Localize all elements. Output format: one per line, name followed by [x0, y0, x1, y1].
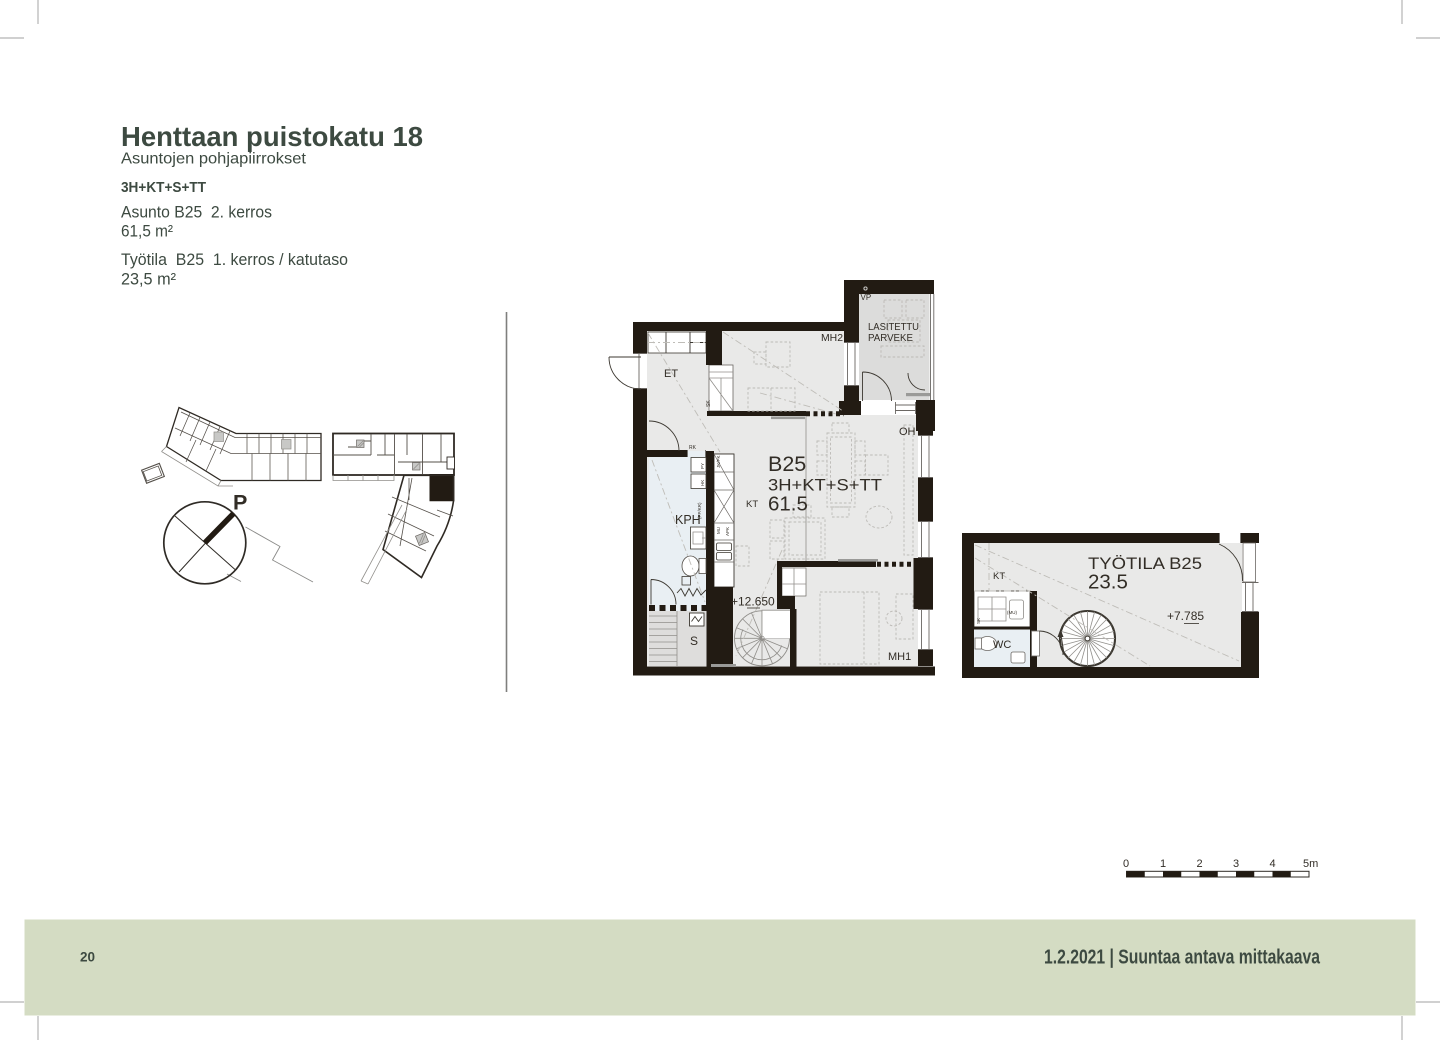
svg-text:S: S [690, 634, 698, 648]
svg-text:MH1: MH1 [888, 651, 911, 663]
svg-text:PARVEKE: PARVEKE [868, 333, 913, 344]
svg-text:4: 4 [1270, 858, 1276, 870]
svg-text:1: 1 [1160, 858, 1166, 870]
svg-text:PY: PY [700, 463, 705, 469]
svg-text:(MU): (MU) [1007, 610, 1017, 615]
svg-text:B25: B25 [768, 452, 806, 476]
svg-text:LASITETTU: LASITETTU [868, 322, 919, 333]
svg-text:(PP/KR): (PP/KR) [697, 502, 702, 519]
svg-text:3H+KT+S+TT: 3H+KT+S+TT [121, 179, 206, 196]
svg-text:61.5: 61.5 [768, 493, 808, 516]
svg-text:Asuntojen pohjapiirrokset: Asuntojen pohjapiirrokset [121, 151, 307, 168]
svg-text:Työtila B25 1. kerros / katu: Työtila B25 1. kerros / katutaso [121, 251, 348, 269]
svg-text:MU: MU [716, 527, 721, 534]
svg-text:P: P [233, 491, 247, 515]
svg-text:KT: KT [993, 571, 1005, 582]
svg-text:3: 3 [1233, 858, 1239, 870]
svg-text:+12.650: +12.650 [731, 595, 775, 609]
svg-text:SK: SK [976, 618, 981, 624]
svg-text:VP: VP [861, 293, 872, 302]
svg-text:WC: WC [993, 639, 1011, 651]
svg-text:2: 2 [1197, 858, 1203, 870]
svg-text:23.5: 23.5 [1088, 571, 1128, 594]
svg-text:JK/PK: JK/PK [716, 455, 721, 468]
svg-text:61,5 m²: 61,5 m² [121, 223, 173, 241]
svg-text:HK: HK [700, 480, 705, 486]
svg-text:Henttaan puistokatu 18: Henttaan puistokatu 18 [121, 121, 423, 152]
svg-text:ET: ET [664, 368, 678, 380]
svg-text:MH2: MH2 [821, 332, 843, 344]
svg-text:20: 20 [80, 950, 95, 965]
svg-text:23,5 m²: 23,5 m² [121, 271, 176, 289]
svg-text:1.2.2021 | Suuntaa antava mitt: 1.2.2021 | Suuntaa antava mittakaava [1044, 947, 1321, 969]
svg-text:RK: RK [689, 445, 697, 451]
svg-text:OH: OH [899, 426, 916, 438]
svg-text:KT: KT [746, 499, 758, 510]
svg-text:SK: SK [706, 400, 712, 407]
svg-text:0: 0 [1123, 858, 1129, 870]
svg-text:Asunto B25 2. kerros: Asunto B25 2. kerros [121, 204, 272, 222]
svg-text:+7.785: +7.785 [1167, 609, 1204, 623]
svg-text:APK: APK [725, 527, 730, 536]
svg-text:5m: 5m [1303, 858, 1318, 870]
